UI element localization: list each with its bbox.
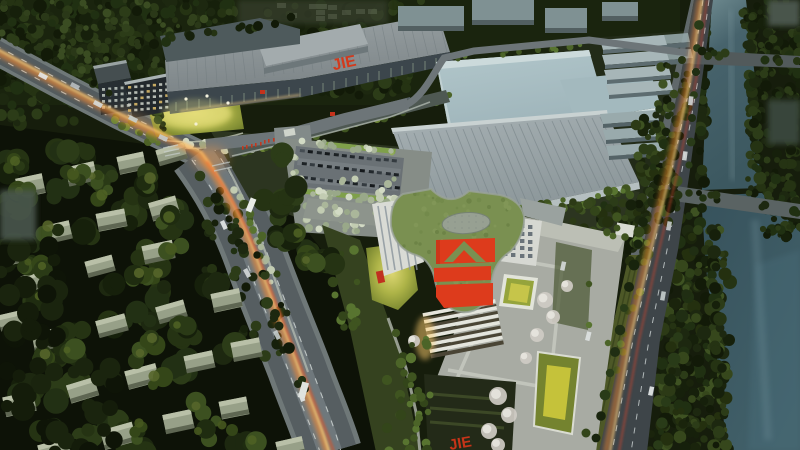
svg-text:JIE: JIE <box>448 433 473 450</box>
